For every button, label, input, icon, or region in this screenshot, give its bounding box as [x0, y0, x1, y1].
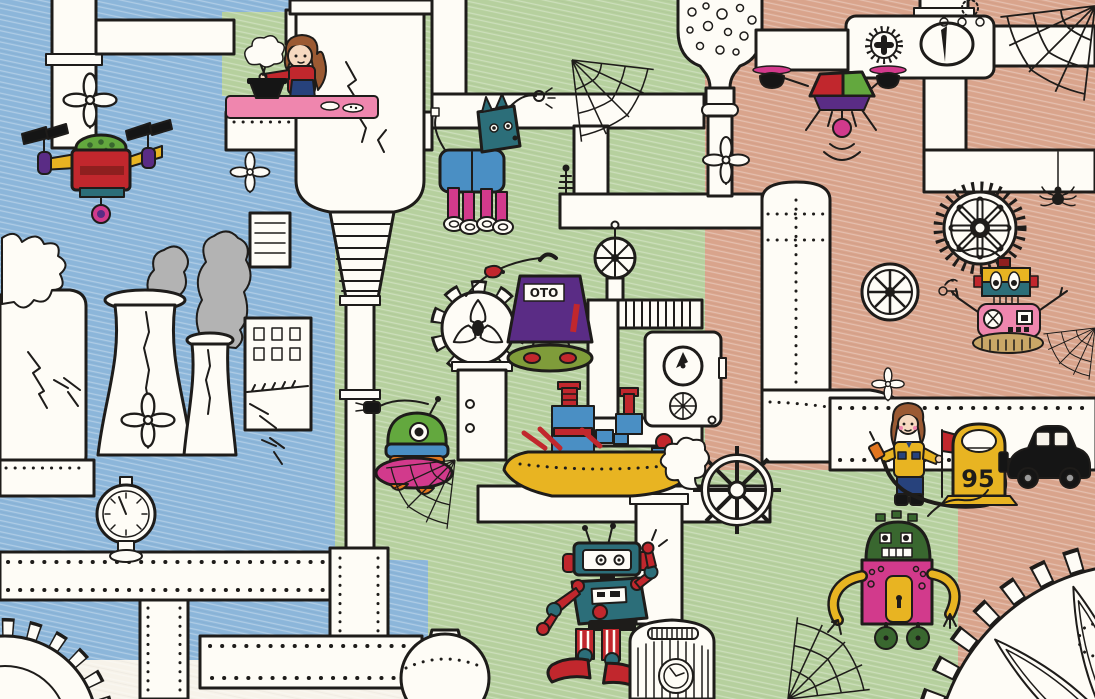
dial-box	[645, 332, 726, 426]
scene-svg: OTO	[0, 0, 1095, 699]
window-building	[245, 318, 311, 430]
ribbed-barrel	[630, 620, 714, 699]
wagon-wheel	[862, 264, 918, 320]
cooking-pot	[250, 82, 284, 98]
weight-tag-label: OTO	[530, 286, 559, 300]
gas-pump-label: 95	[961, 465, 994, 493]
vent-box	[250, 213, 290, 267]
illustration-canvas: OTO	[0, 0, 1095, 699]
left-tank	[0, 290, 86, 470]
